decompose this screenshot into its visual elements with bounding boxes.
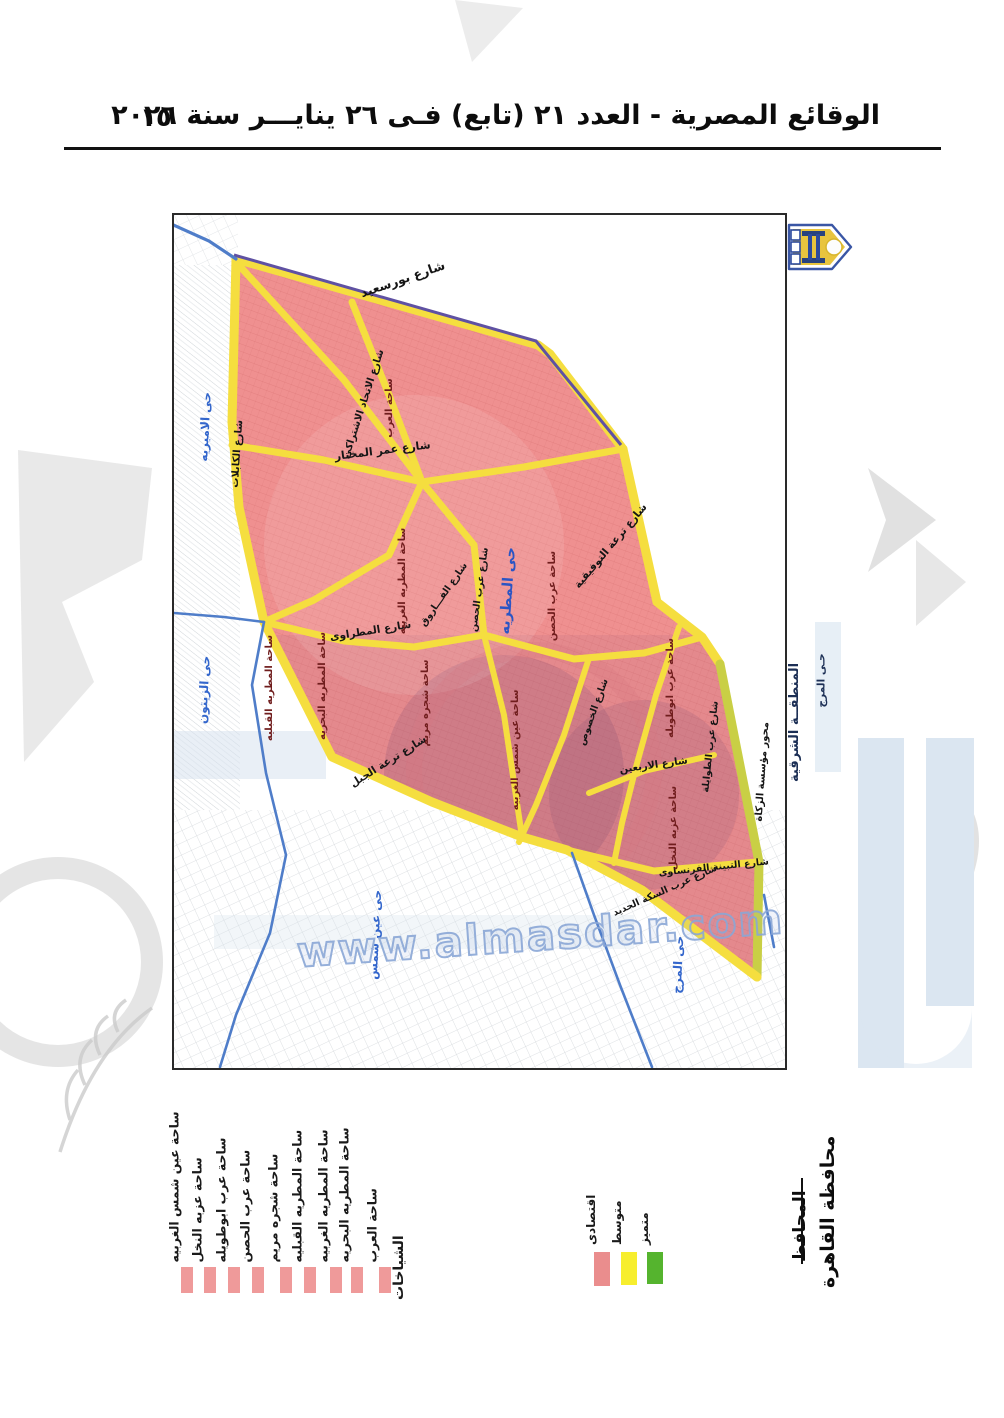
zone-label-district: حـى المرج <box>817 653 828 707</box>
signature-governorate: محافظة القاهرة <box>819 1136 838 1288</box>
square-label: ساحة المطريه البحريه <box>317 632 328 740</box>
legend-square-item: ساحة المطريه القبليه <box>292 1130 305 1263</box>
legend-square-swatch <box>304 1267 316 1293</box>
square-label: ساحة المطريه القبليه <box>264 635 275 741</box>
legend-square-item: ساحة شجره مريم <box>268 1154 281 1263</box>
legend-square-item: ساحة عرب الحصن <box>240 1150 253 1263</box>
street-label: شارع بورسعيد <box>358 257 447 300</box>
legend-square-swatch <box>330 1267 342 1293</box>
cairo-governorate-logo-icon <box>787 219 854 275</box>
header-rule <box>64 147 941 150</box>
legend-square-item: ساحة عرب ابوطويله <box>216 1138 229 1263</box>
legend-square-item: ساحة العرب <box>367 1188 380 1262</box>
legend-quality-label: اقتصادى <box>585 1195 597 1245</box>
legend-square-item: ساحة عين شمس الغربيه <box>169 1111 182 1262</box>
square-label: ساحة عرب ابوطويله <box>665 638 676 738</box>
legend-square-swatch <box>379 1267 391 1293</box>
legend-quality-swatch-red <box>594 1252 610 1286</box>
legend-square-item: ساحة المطريه البحريه <box>339 1127 352 1262</box>
legend-square-swatch <box>280 1267 292 1293</box>
district-map: شارع بورسعيد شارع الاتحاد الاشتراكى شارع… <box>172 213 787 1070</box>
gazette-header-title: الوقائع المصرية - العدد ٢١ (تابع) فـى ٢٦… <box>111 100 880 131</box>
square-label: ساحة المطريه الغربيه <box>397 528 408 635</box>
legend-square-swatch <box>181 1267 193 1293</box>
street-label: محور مؤسسة الزكاة <box>754 722 772 822</box>
square-label: ساحة شجره مريم <box>420 659 431 746</box>
legend-quality-label: متميز <box>638 1212 650 1245</box>
square-label: ساحة العرب <box>384 378 395 438</box>
legend-square-swatch <box>351 1267 363 1293</box>
legend-square-swatch <box>204 1267 216 1293</box>
legend-square-swatch <box>252 1267 264 1293</box>
legend-quality-swatch-green <box>647 1252 663 1284</box>
square-label: ساحة عين شمس الغربيه <box>510 689 521 810</box>
legend-quality-label: متوسط <box>611 1200 623 1245</box>
square-label: ساحة عرب الحصن <box>547 551 558 641</box>
legend-quality-swatch-yellow <box>621 1252 637 1285</box>
square-label: ساحة عزبه النخل <box>668 786 679 870</box>
legend-squares-title: الشياخات <box>392 1235 406 1300</box>
legend-square-item: ساحة عزبه النخل <box>192 1157 205 1262</box>
page-number: ١٥ <box>140 103 172 133</box>
gazette-page: الوقائع المصرية - العدد ٢١ (تابع) فـى ٢٦… <box>0 0 1004 1418</box>
zone-label-eastern-region: المنطقــة الشرقية <box>788 663 801 782</box>
signature-underline <box>801 1178 803 1264</box>
legend-square-item: ساحة المطريه الغربيه <box>318 1129 331 1262</box>
legend-square-swatch <box>228 1267 240 1293</box>
